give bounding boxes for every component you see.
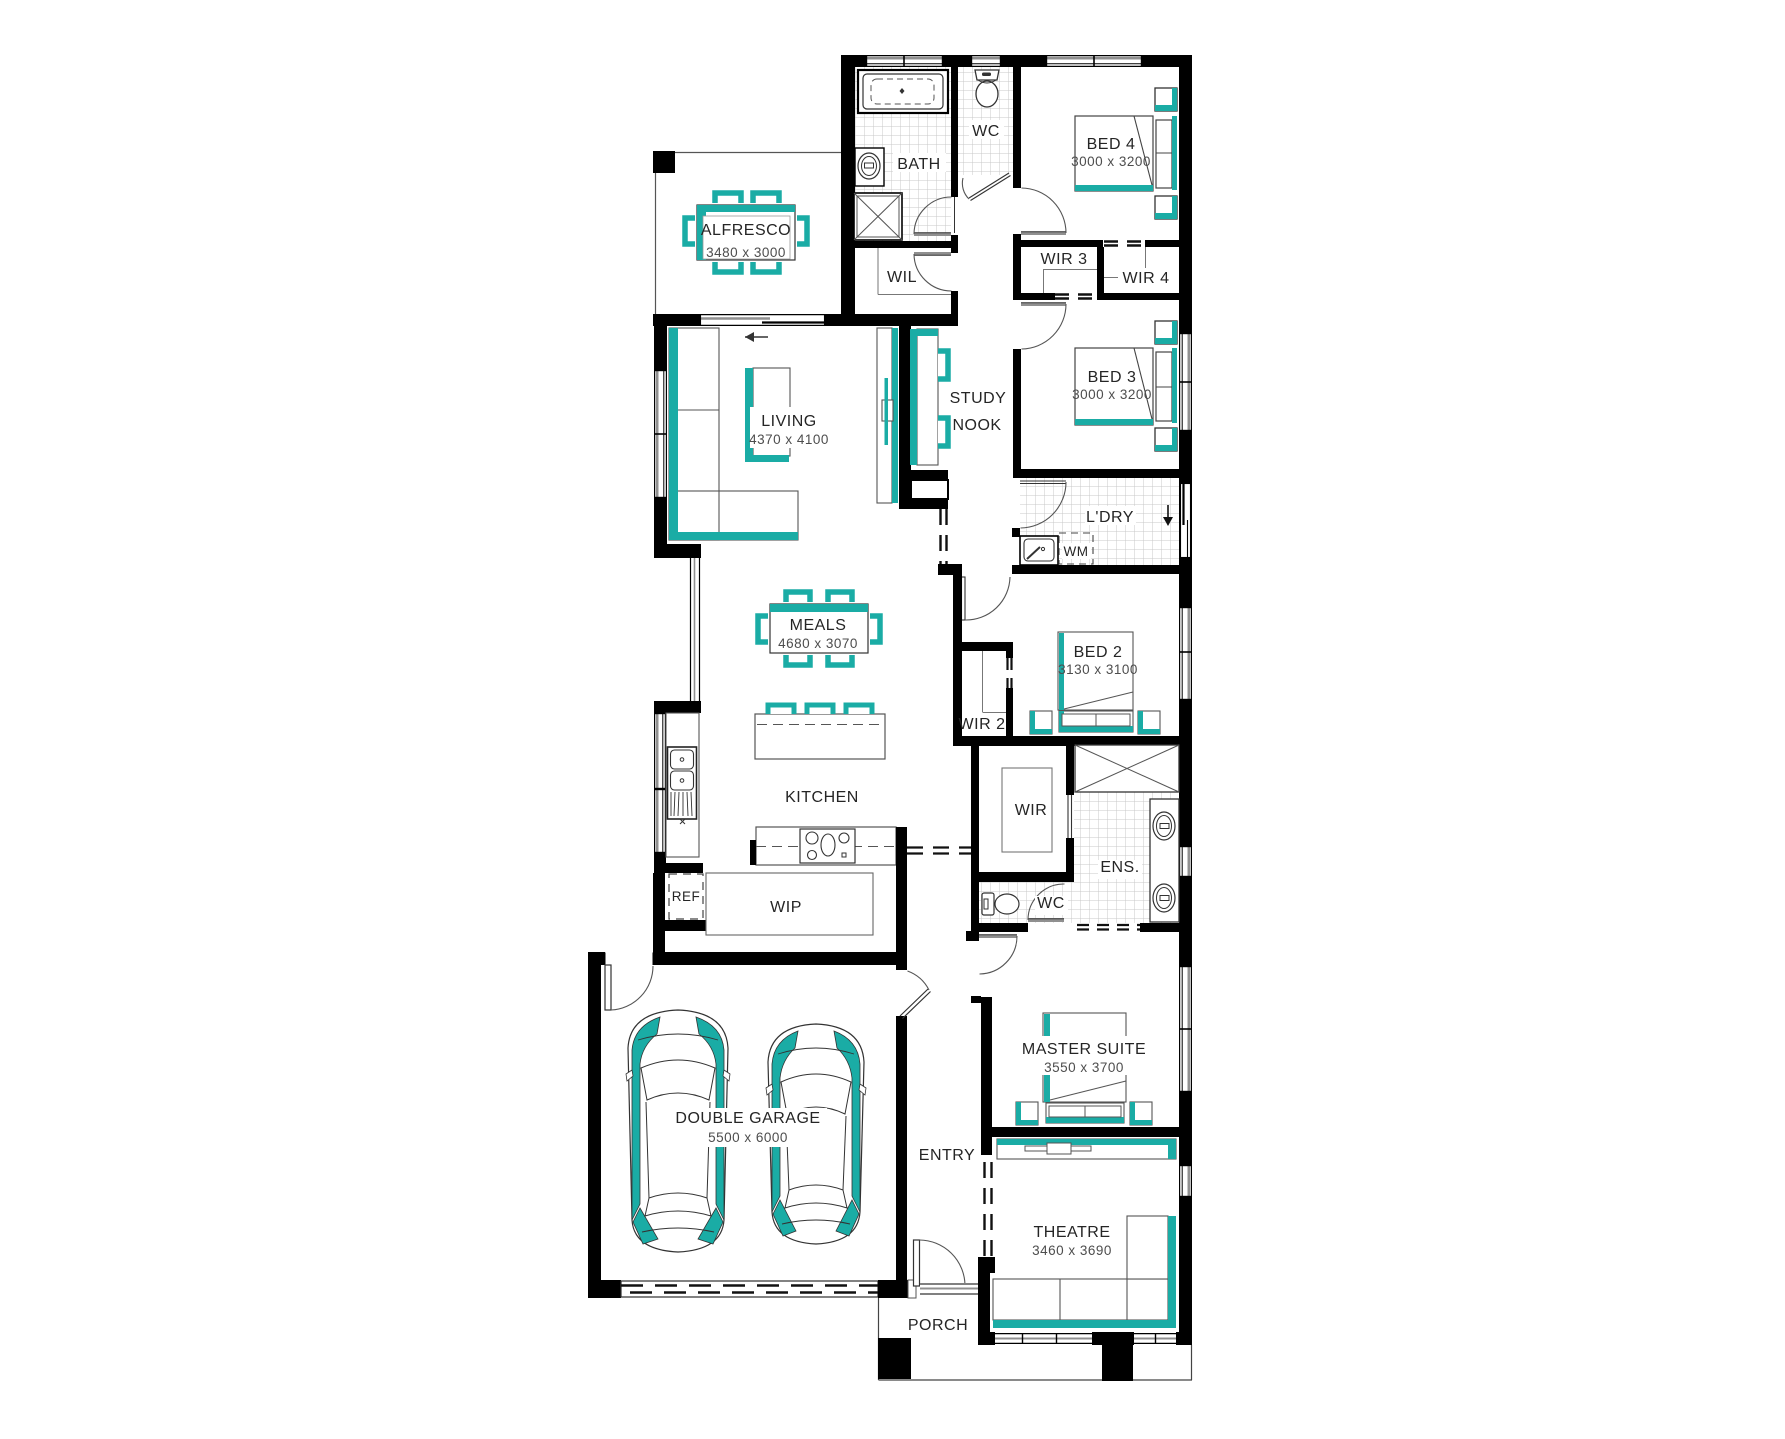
svg-text:WIR 2: WIR 2: [959, 716, 1006, 733]
svg-text:3000 x 3200: 3000 x 3200: [1071, 154, 1151, 169]
svg-text:ALFRESCO: ALFRESCO: [701, 222, 791, 239]
svg-text:WC: WC: [972, 123, 1000, 140]
svg-text:WIR 4: WIR 4: [1123, 270, 1170, 287]
svg-text:MEALS: MEALS: [790, 617, 847, 634]
svg-text:NOOK: NOOK: [952, 417, 1001, 434]
svg-text:BED 4: BED 4: [1087, 136, 1136, 153]
svg-text:5500 x 6000: 5500 x 6000: [708, 1130, 788, 1145]
svg-text:ENTRY: ENTRY: [919, 1147, 975, 1164]
svg-text:STUDY: STUDY: [950, 390, 1007, 407]
svg-text:WIR 3: WIR 3: [1041, 251, 1088, 268]
svg-text:PORCH: PORCH: [908, 1317, 968, 1334]
svg-text:3460 x 3690: 3460 x 3690: [1032, 1243, 1112, 1258]
svg-text:LIVING: LIVING: [761, 413, 816, 430]
svg-text:MASTER SUITE: MASTER SUITE: [1022, 1041, 1146, 1058]
svg-text:WIP: WIP: [770, 899, 802, 916]
svg-text:REF: REF: [672, 889, 701, 904]
svg-text:WM: WM: [1064, 544, 1089, 559]
svg-text:BED 2: BED 2: [1074, 644, 1123, 661]
svg-text:3550 x 3700: 3550 x 3700: [1044, 1060, 1124, 1075]
svg-text:3130 x 3100: 3130 x 3100: [1058, 662, 1138, 677]
svg-text:THEATRE: THEATRE: [1034, 1224, 1111, 1241]
svg-text:DOUBLE GARAGE: DOUBLE GARAGE: [675, 1110, 820, 1127]
svg-text:KITCHEN: KITCHEN: [785, 789, 859, 806]
svg-text:ENS.: ENS.: [1100, 859, 1139, 876]
svg-text:4370 x 4100: 4370 x 4100: [749, 432, 829, 447]
svg-text:BED 3: BED 3: [1088, 369, 1137, 386]
svg-text:BATH: BATH: [897, 156, 940, 173]
svg-text:4680 x 3070: 4680 x 3070: [778, 636, 858, 651]
svg-text:WC: WC: [1037, 895, 1065, 912]
svg-text:3480 x 3000: 3480 x 3000: [706, 245, 786, 260]
svg-text:3000 x 3200: 3000 x 3200: [1072, 387, 1152, 402]
svg-text:L'DRY: L'DRY: [1086, 509, 1134, 526]
svg-text:WIL: WIL: [887, 269, 917, 286]
svg-text:WIR: WIR: [1015, 802, 1048, 819]
